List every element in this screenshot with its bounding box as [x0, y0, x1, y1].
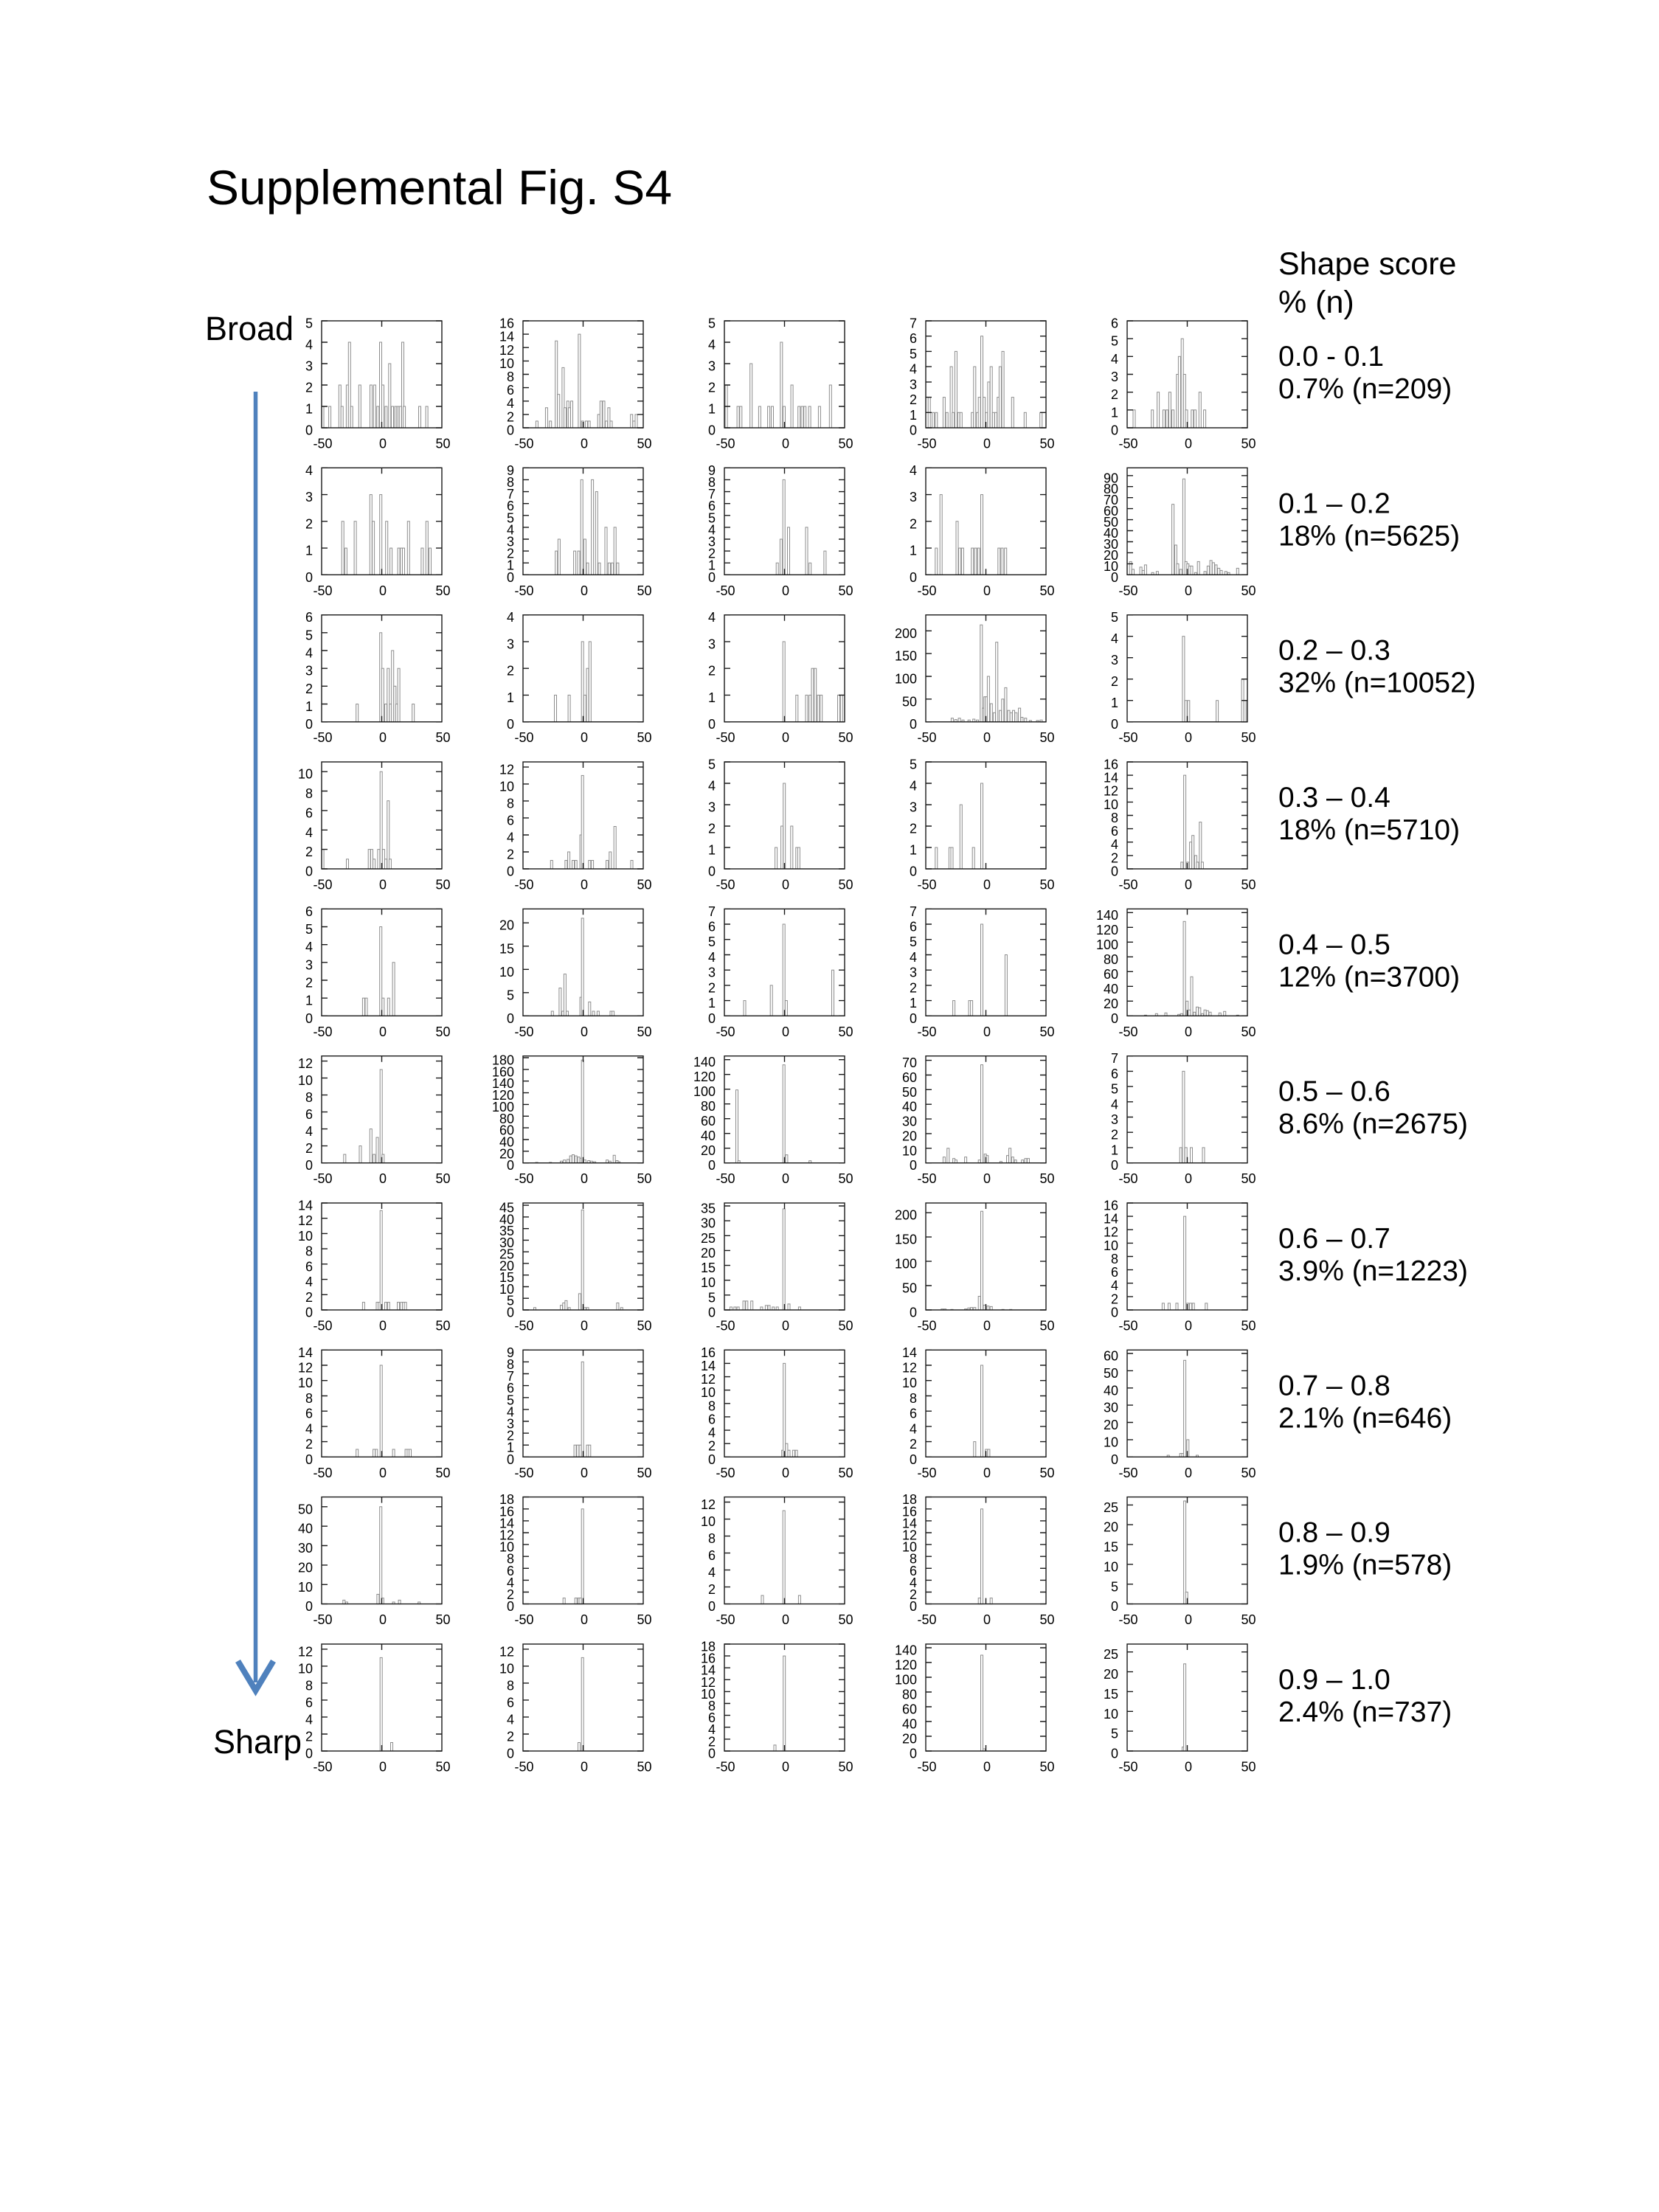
svg-text:60: 60: [902, 1070, 917, 1085]
svg-text:0: 0: [983, 1171, 991, 1186]
svg-text:50: 50: [637, 730, 651, 745]
svg-text:6: 6: [1111, 1265, 1118, 1280]
svg-text:-50: -50: [716, 730, 735, 745]
svg-text:Shape score: Shape score: [1278, 246, 1456, 282]
svg-text:6: 6: [708, 1548, 716, 1563]
svg-text:4: 4: [708, 1426, 716, 1440]
svg-text:4: 4: [1111, 1278, 1118, 1293]
svg-text:140: 140: [693, 1055, 716, 1069]
svg-text:50: 50: [435, 583, 450, 598]
svg-text:0: 0: [708, 864, 716, 879]
svg-text:8: 8: [507, 1678, 514, 1693]
svg-text:120: 120: [693, 1069, 716, 1084]
svg-text:-50: -50: [313, 583, 332, 598]
svg-text:1: 1: [305, 544, 313, 558]
svg-text:0: 0: [1111, 1306, 1118, 1320]
svg-text:-50: -50: [313, 437, 332, 451]
svg-text:4: 4: [507, 831, 514, 845]
svg-text:0: 0: [708, 423, 716, 438]
svg-text:0: 0: [305, 717, 313, 732]
svg-text:100: 100: [1096, 937, 1118, 952]
svg-text:0: 0: [1111, 717, 1118, 732]
svg-text:0: 0: [581, 583, 588, 598]
svg-text:-50: -50: [313, 1024, 332, 1039]
svg-text:16: 16: [499, 316, 514, 331]
svg-text:80: 80: [701, 1099, 716, 1114]
svg-text:50: 50: [435, 1760, 450, 1775]
svg-text:3.9% (n=1223): 3.9% (n=1223): [1278, 1255, 1468, 1287]
svg-text:4: 4: [708, 338, 716, 353]
svg-text:2: 2: [507, 1730, 514, 1744]
svg-text:-50: -50: [313, 730, 332, 745]
svg-text:18: 18: [701, 1640, 716, 1654]
svg-text:0: 0: [379, 1319, 387, 1334]
svg-text:-50: -50: [1118, 1171, 1137, 1186]
svg-text:0: 0: [379, 1760, 387, 1775]
svg-text:0: 0: [507, 1747, 514, 1761]
svg-text:50: 50: [1039, 1024, 1054, 1039]
svg-text:-50: -50: [716, 1319, 735, 1334]
svg-text:30: 30: [701, 1216, 716, 1231]
svg-text:5: 5: [305, 922, 313, 937]
svg-text:10: 10: [298, 1661, 313, 1676]
svg-text:40: 40: [1104, 982, 1118, 996]
svg-text:0: 0: [305, 1158, 313, 1173]
svg-text:0: 0: [708, 1306, 716, 1320]
svg-text:-50: -50: [514, 583, 533, 598]
svg-text:50: 50: [838, 1319, 853, 1334]
svg-text:50: 50: [435, 1466, 450, 1480]
svg-text:5: 5: [507, 988, 514, 1002]
svg-text:0: 0: [782, 730, 789, 745]
svg-text:20: 20: [1104, 1418, 1118, 1432]
svg-text:3: 3: [910, 800, 917, 815]
svg-text:5: 5: [1111, 1082, 1118, 1097]
svg-text:20: 20: [1104, 996, 1118, 1011]
svg-text:0: 0: [305, 864, 313, 879]
svg-text:50: 50: [1039, 1319, 1054, 1334]
svg-text:100: 100: [693, 1084, 716, 1099]
svg-text:-50: -50: [1118, 878, 1137, 892]
svg-text:9: 9: [507, 1345, 514, 1360]
svg-text:50: 50: [1241, 1319, 1255, 1334]
svg-text:10: 10: [499, 356, 514, 371]
svg-text:0: 0: [1111, 1158, 1118, 1173]
svg-text:16: 16: [701, 1345, 716, 1360]
svg-text:0: 0: [507, 423, 514, 438]
svg-text:20: 20: [902, 1128, 917, 1143]
svg-text:0: 0: [910, 570, 917, 585]
svg-text:0: 0: [305, 1306, 313, 1320]
svg-text:6: 6: [910, 920, 917, 935]
svg-text:4: 4: [708, 610, 716, 625]
svg-text:12: 12: [701, 1372, 716, 1387]
svg-text:8.6% (n=2675): 8.6% (n=2675): [1278, 1109, 1468, 1140]
svg-text:12: 12: [298, 1644, 313, 1659]
svg-text:10: 10: [1104, 1238, 1118, 1253]
svg-text:-50: -50: [716, 437, 735, 451]
svg-text:0.5 – 0.6: 0.5 – 0.6: [1278, 1076, 1390, 1108]
svg-text:10: 10: [701, 1275, 716, 1290]
svg-text:0: 0: [782, 437, 789, 451]
svg-text:50: 50: [838, 730, 853, 745]
svg-text:20: 20: [902, 1732, 917, 1747]
svg-text:3: 3: [305, 359, 313, 374]
svg-text:2: 2: [910, 822, 917, 836]
svg-text:10: 10: [499, 965, 514, 980]
svg-text:12: 12: [499, 343, 514, 358]
svg-text:-50: -50: [313, 1466, 332, 1480]
svg-text:40: 40: [298, 1522, 313, 1536]
svg-text:2: 2: [305, 976, 313, 991]
svg-text:1: 1: [910, 996, 917, 1010]
svg-text:50: 50: [1241, 1024, 1255, 1039]
svg-text:-50: -50: [514, 878, 533, 892]
svg-text:100: 100: [895, 672, 917, 687]
svg-text:-50: -50: [716, 1466, 735, 1480]
svg-text:-50: -50: [917, 437, 936, 451]
svg-text:12: 12: [1104, 1225, 1118, 1240]
svg-text:18: 18: [902, 1492, 917, 1507]
svg-text:4: 4: [910, 463, 917, 478]
svg-text:1: 1: [708, 690, 716, 705]
svg-text:5: 5: [708, 935, 716, 949]
svg-text:0: 0: [1185, 583, 1192, 598]
svg-text:200: 200: [895, 1208, 917, 1223]
svg-text:50: 50: [838, 583, 853, 598]
svg-text:0: 0: [782, 1466, 789, 1480]
svg-text:50: 50: [637, 583, 651, 598]
svg-text:0: 0: [983, 1612, 991, 1627]
svg-text:100: 100: [895, 1257, 917, 1272]
svg-text:6: 6: [708, 920, 716, 935]
svg-text:3: 3: [708, 800, 716, 815]
svg-text:0: 0: [910, 1158, 917, 1173]
svg-text:8: 8: [305, 1391, 313, 1406]
svg-text:12: 12: [701, 1497, 716, 1512]
svg-text:8: 8: [910, 1391, 917, 1406]
svg-text:18% (n=5625): 18% (n=5625): [1278, 520, 1460, 552]
svg-text:6: 6: [1111, 824, 1118, 839]
svg-text:0: 0: [1185, 1024, 1192, 1039]
svg-text:12: 12: [298, 1056, 313, 1071]
svg-text:3: 3: [910, 377, 917, 392]
svg-text:4: 4: [305, 1124, 313, 1139]
svg-text:-50: -50: [917, 1319, 936, 1334]
svg-text:0: 0: [910, 423, 917, 438]
svg-text:50: 50: [1241, 583, 1255, 598]
svg-text:8: 8: [507, 796, 514, 811]
svg-text:0: 0: [581, 1319, 588, 1334]
svg-text:14: 14: [1104, 771, 1118, 786]
svg-text:8: 8: [507, 370, 514, 384]
svg-text:0: 0: [782, 1612, 789, 1627]
svg-text:50: 50: [838, 1612, 853, 1627]
svg-text:6: 6: [708, 1412, 716, 1426]
svg-text:4: 4: [708, 1565, 716, 1580]
svg-text:-50: -50: [514, 1319, 533, 1334]
svg-text:5: 5: [708, 757, 716, 772]
svg-text:0: 0: [708, 717, 716, 732]
svg-text:-50: -50: [514, 1171, 533, 1186]
svg-text:0: 0: [507, 864, 514, 879]
svg-text:-50: -50: [514, 437, 533, 451]
svg-text:60: 60: [1104, 967, 1118, 982]
svg-text:50: 50: [1039, 878, 1054, 892]
svg-text:-50: -50: [917, 1024, 936, 1039]
svg-text:1.9% (n=578): 1.9% (n=578): [1278, 1550, 1452, 1581]
svg-text:0: 0: [1111, 423, 1118, 438]
svg-text:180: 180: [492, 1053, 514, 1068]
svg-text:20: 20: [1104, 1520, 1118, 1535]
svg-text:6: 6: [507, 383, 514, 398]
svg-text:1: 1: [708, 996, 716, 1010]
svg-text:1: 1: [305, 994, 313, 1008]
svg-text:-50: -50: [313, 1319, 332, 1334]
svg-text:8: 8: [1111, 811, 1118, 825]
svg-text:6: 6: [305, 1695, 313, 1710]
svg-text:4: 4: [507, 1712, 514, 1727]
svg-text:0: 0: [1111, 1452, 1118, 1467]
svg-text:0: 0: [782, 1024, 789, 1039]
svg-text:10: 10: [298, 1073, 313, 1088]
svg-text:-50: -50: [716, 583, 735, 598]
svg-text:0: 0: [983, 1319, 991, 1334]
svg-text:-50: -50: [917, 730, 936, 745]
svg-text:3: 3: [708, 359, 716, 374]
svg-text:32% (n=10052): 32% (n=10052): [1278, 668, 1476, 699]
svg-text:0: 0: [305, 570, 313, 585]
svg-text:-50: -50: [1118, 1024, 1137, 1039]
svg-text:5: 5: [1111, 334, 1118, 349]
svg-text:4: 4: [910, 779, 917, 794]
svg-text:0: 0: [581, 878, 588, 892]
svg-text:-50: -50: [716, 1612, 735, 1627]
svg-text:0: 0: [1111, 1747, 1118, 1761]
svg-text:50: 50: [435, 730, 450, 745]
svg-text:14: 14: [1104, 1212, 1118, 1227]
svg-text:0: 0: [782, 878, 789, 892]
svg-text:9: 9: [708, 463, 716, 478]
svg-text:-50: -50: [1118, 1760, 1137, 1775]
svg-text:6: 6: [305, 610, 313, 625]
svg-text:5: 5: [1111, 1579, 1118, 1594]
svg-text:50: 50: [838, 1466, 853, 1480]
svg-text:2: 2: [1111, 1292, 1118, 1306]
svg-text:2: 2: [708, 381, 716, 395]
svg-text:8: 8: [305, 1678, 313, 1693]
svg-text:2: 2: [305, 682, 313, 696]
svg-text:Supplemental Fig. S4: Supplemental Fig. S4: [207, 160, 672, 215]
svg-text:5: 5: [1111, 1727, 1118, 1741]
svg-text:25: 25: [1104, 1647, 1118, 1662]
svg-text:4: 4: [910, 950, 917, 965]
svg-text:1: 1: [910, 843, 917, 858]
svg-text:0: 0: [1185, 1760, 1192, 1775]
svg-text:6: 6: [305, 1259, 313, 1274]
svg-text:10: 10: [298, 1229, 313, 1244]
svg-text:0: 0: [305, 1599, 313, 1614]
svg-text:3: 3: [910, 965, 917, 980]
svg-text:20: 20: [1104, 1667, 1118, 1682]
svg-text:50: 50: [637, 1466, 651, 1480]
svg-text:0: 0: [379, 1466, 387, 1480]
svg-text:50: 50: [298, 1502, 313, 1516]
svg-text:0: 0: [910, 1452, 917, 1467]
svg-text:2.4% (n=737): 2.4% (n=737): [1278, 1696, 1452, 1728]
svg-text:50: 50: [1241, 1760, 1255, 1775]
svg-text:45: 45: [499, 1201, 514, 1216]
svg-text:0: 0: [507, 717, 514, 732]
svg-text:12: 12: [1104, 784, 1118, 799]
svg-text:-50: -50: [313, 1760, 332, 1775]
svg-text:0: 0: [1111, 1599, 1118, 1614]
svg-text:2: 2: [507, 847, 514, 862]
svg-text:14: 14: [298, 1345, 313, 1360]
svg-text:-50: -50: [1118, 583, 1137, 598]
svg-text:40: 40: [902, 1100, 917, 1114]
svg-text:8: 8: [305, 1244, 313, 1259]
svg-text:50: 50: [1241, 437, 1255, 451]
svg-text:10: 10: [902, 1376, 917, 1390]
svg-text:3: 3: [910, 490, 917, 505]
svg-text:-50: -50: [1118, 437, 1137, 451]
svg-text:12% (n=3700): 12% (n=3700): [1278, 961, 1460, 993]
svg-text:16: 16: [1104, 1199, 1118, 1213]
svg-text:8: 8: [305, 1090, 313, 1105]
svg-text:0.1 – 0.2: 0.1 – 0.2: [1278, 488, 1390, 519]
svg-text:6: 6: [507, 1695, 514, 1710]
svg-text:2: 2: [910, 1437, 917, 1452]
svg-text:50: 50: [902, 1281, 917, 1296]
svg-text:100: 100: [895, 1673, 917, 1688]
svg-text:50: 50: [637, 1319, 651, 1334]
svg-text:50: 50: [1241, 1612, 1255, 1627]
svg-text:0: 0: [983, 437, 991, 451]
svg-text:0: 0: [708, 1011, 716, 1026]
svg-text:12: 12: [499, 1644, 514, 1659]
svg-text:1: 1: [1111, 1143, 1118, 1157]
svg-text:2: 2: [910, 980, 917, 995]
svg-text:0.6 – 0.7: 0.6 – 0.7: [1278, 1223, 1390, 1255]
svg-text:3: 3: [507, 637, 514, 651]
svg-text:4: 4: [507, 610, 514, 625]
svg-text:3: 3: [305, 664, 313, 679]
svg-text:4: 4: [305, 1421, 313, 1436]
svg-text:5: 5: [910, 935, 917, 949]
svg-text:10: 10: [499, 779, 514, 794]
svg-text:18: 18: [499, 1492, 514, 1507]
svg-text:2: 2: [1111, 850, 1118, 865]
svg-text:3: 3: [1111, 653, 1118, 668]
svg-text:4: 4: [305, 463, 313, 478]
svg-text:6: 6: [1111, 1067, 1118, 1081]
svg-text:80: 80: [902, 1688, 917, 1702]
svg-text:50: 50: [1039, 730, 1054, 745]
svg-text:15: 15: [499, 941, 514, 956]
svg-text:50: 50: [1039, 437, 1054, 451]
svg-text:2: 2: [708, 980, 716, 995]
svg-text:0: 0: [305, 1011, 313, 1026]
svg-text:-50: -50: [716, 1171, 735, 1186]
svg-text:-50: -50: [917, 1466, 936, 1480]
svg-text:0: 0: [708, 1158, 716, 1173]
svg-text:0: 0: [910, 717, 917, 732]
svg-text:-50: -50: [917, 583, 936, 598]
svg-text:-50: -50: [917, 1171, 936, 1186]
svg-text:0: 0: [983, 730, 991, 745]
svg-text:0: 0: [507, 1011, 514, 1026]
svg-text:0: 0: [983, 1466, 991, 1480]
svg-text:50: 50: [838, 1760, 853, 1775]
svg-text:7: 7: [910, 904, 917, 919]
svg-text:50: 50: [1039, 1171, 1054, 1186]
svg-text:10: 10: [298, 767, 313, 782]
svg-text:% (n): % (n): [1278, 285, 1354, 320]
svg-text:4: 4: [305, 1275, 313, 1289]
svg-text:0.9 – 1.0: 0.9 – 1.0: [1278, 1664, 1390, 1696]
svg-text:70: 70: [902, 1055, 917, 1070]
svg-text:50: 50: [435, 1171, 450, 1186]
svg-text:2: 2: [1111, 1128, 1118, 1143]
svg-text:0: 0: [910, 1011, 917, 1026]
svg-text:8: 8: [708, 1398, 716, 1413]
svg-text:0.7 – 0.8: 0.7 – 0.8: [1278, 1370, 1390, 1401]
svg-text:0: 0: [581, 730, 588, 745]
svg-text:10: 10: [499, 1661, 514, 1676]
svg-text:2: 2: [305, 516, 313, 531]
svg-text:50: 50: [637, 1612, 651, 1627]
svg-text:4: 4: [708, 950, 716, 965]
svg-text:50: 50: [1241, 878, 1255, 892]
svg-text:3: 3: [1111, 370, 1118, 384]
svg-text:1: 1: [507, 690, 514, 705]
svg-text:-50: -50: [514, 730, 533, 745]
svg-text:2: 2: [1111, 387, 1118, 402]
svg-text:5: 5: [708, 316, 716, 331]
svg-text:0: 0: [379, 730, 387, 745]
svg-text:10: 10: [902, 1143, 917, 1158]
svg-text:14: 14: [298, 1199, 313, 1213]
svg-text:50: 50: [1241, 1466, 1255, 1480]
svg-text:10: 10: [298, 1580, 313, 1595]
svg-text:10: 10: [701, 1385, 716, 1400]
svg-text:16: 16: [1104, 757, 1118, 772]
svg-text:7: 7: [1111, 1051, 1118, 1066]
svg-text:8: 8: [305, 786, 313, 801]
svg-text:2: 2: [910, 516, 917, 531]
svg-text:50: 50: [1039, 583, 1054, 598]
svg-text:0.8 – 0.9: 0.8 – 0.9: [1278, 1517, 1390, 1549]
svg-text:2.1% (n=646): 2.1% (n=646): [1278, 1402, 1452, 1434]
svg-text:3: 3: [305, 490, 313, 505]
svg-text:1: 1: [708, 402, 716, 417]
svg-text:18% (n=5710): 18% (n=5710): [1278, 814, 1460, 846]
svg-text:0: 0: [983, 1024, 991, 1039]
svg-text:0: 0: [1111, 1011, 1118, 1026]
svg-text:20: 20: [701, 1143, 716, 1158]
svg-text:7: 7: [910, 316, 917, 331]
svg-text:50: 50: [435, 1319, 450, 1334]
svg-text:50: 50: [902, 694, 917, 709]
svg-text:0.7% (n=209): 0.7% (n=209): [1278, 373, 1452, 405]
svg-text:12: 12: [902, 1361, 917, 1376]
svg-text:2: 2: [910, 392, 917, 407]
svg-text:2: 2: [305, 1290, 313, 1305]
svg-text:2: 2: [708, 822, 716, 836]
svg-text:5: 5: [305, 316, 313, 331]
svg-text:50: 50: [838, 878, 853, 892]
